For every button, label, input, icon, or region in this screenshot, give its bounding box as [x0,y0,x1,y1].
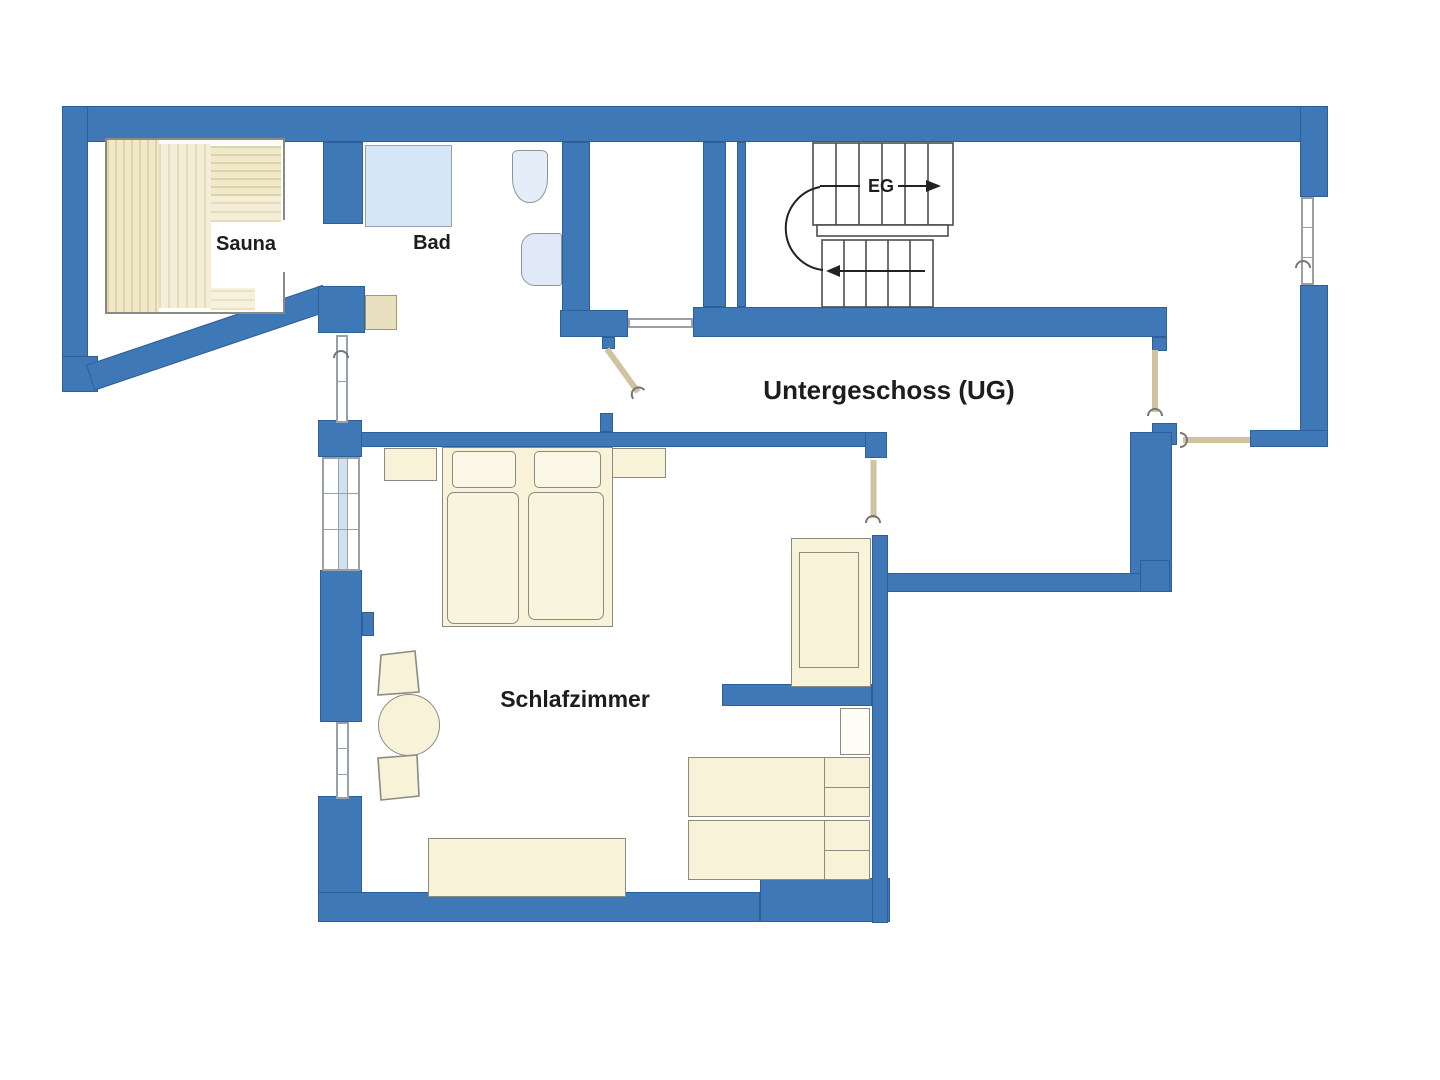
room-label-schlafzimmer: Schlafzimmer [455,686,695,712]
staircase-icon [813,143,953,307]
floor-plan: Sauna Bad EG Untergeschoss (UG) Schlafzi… [0,0,1440,1080]
chair-icon [378,651,419,800]
stair-label-eg: EG [849,176,913,196]
floor-label: Untergeschoss (UG) [739,376,1039,405]
linework-overlay [0,0,1440,1080]
room-label-sauna: Sauna [196,233,296,255]
room-label-bad: Bad [382,232,482,254]
